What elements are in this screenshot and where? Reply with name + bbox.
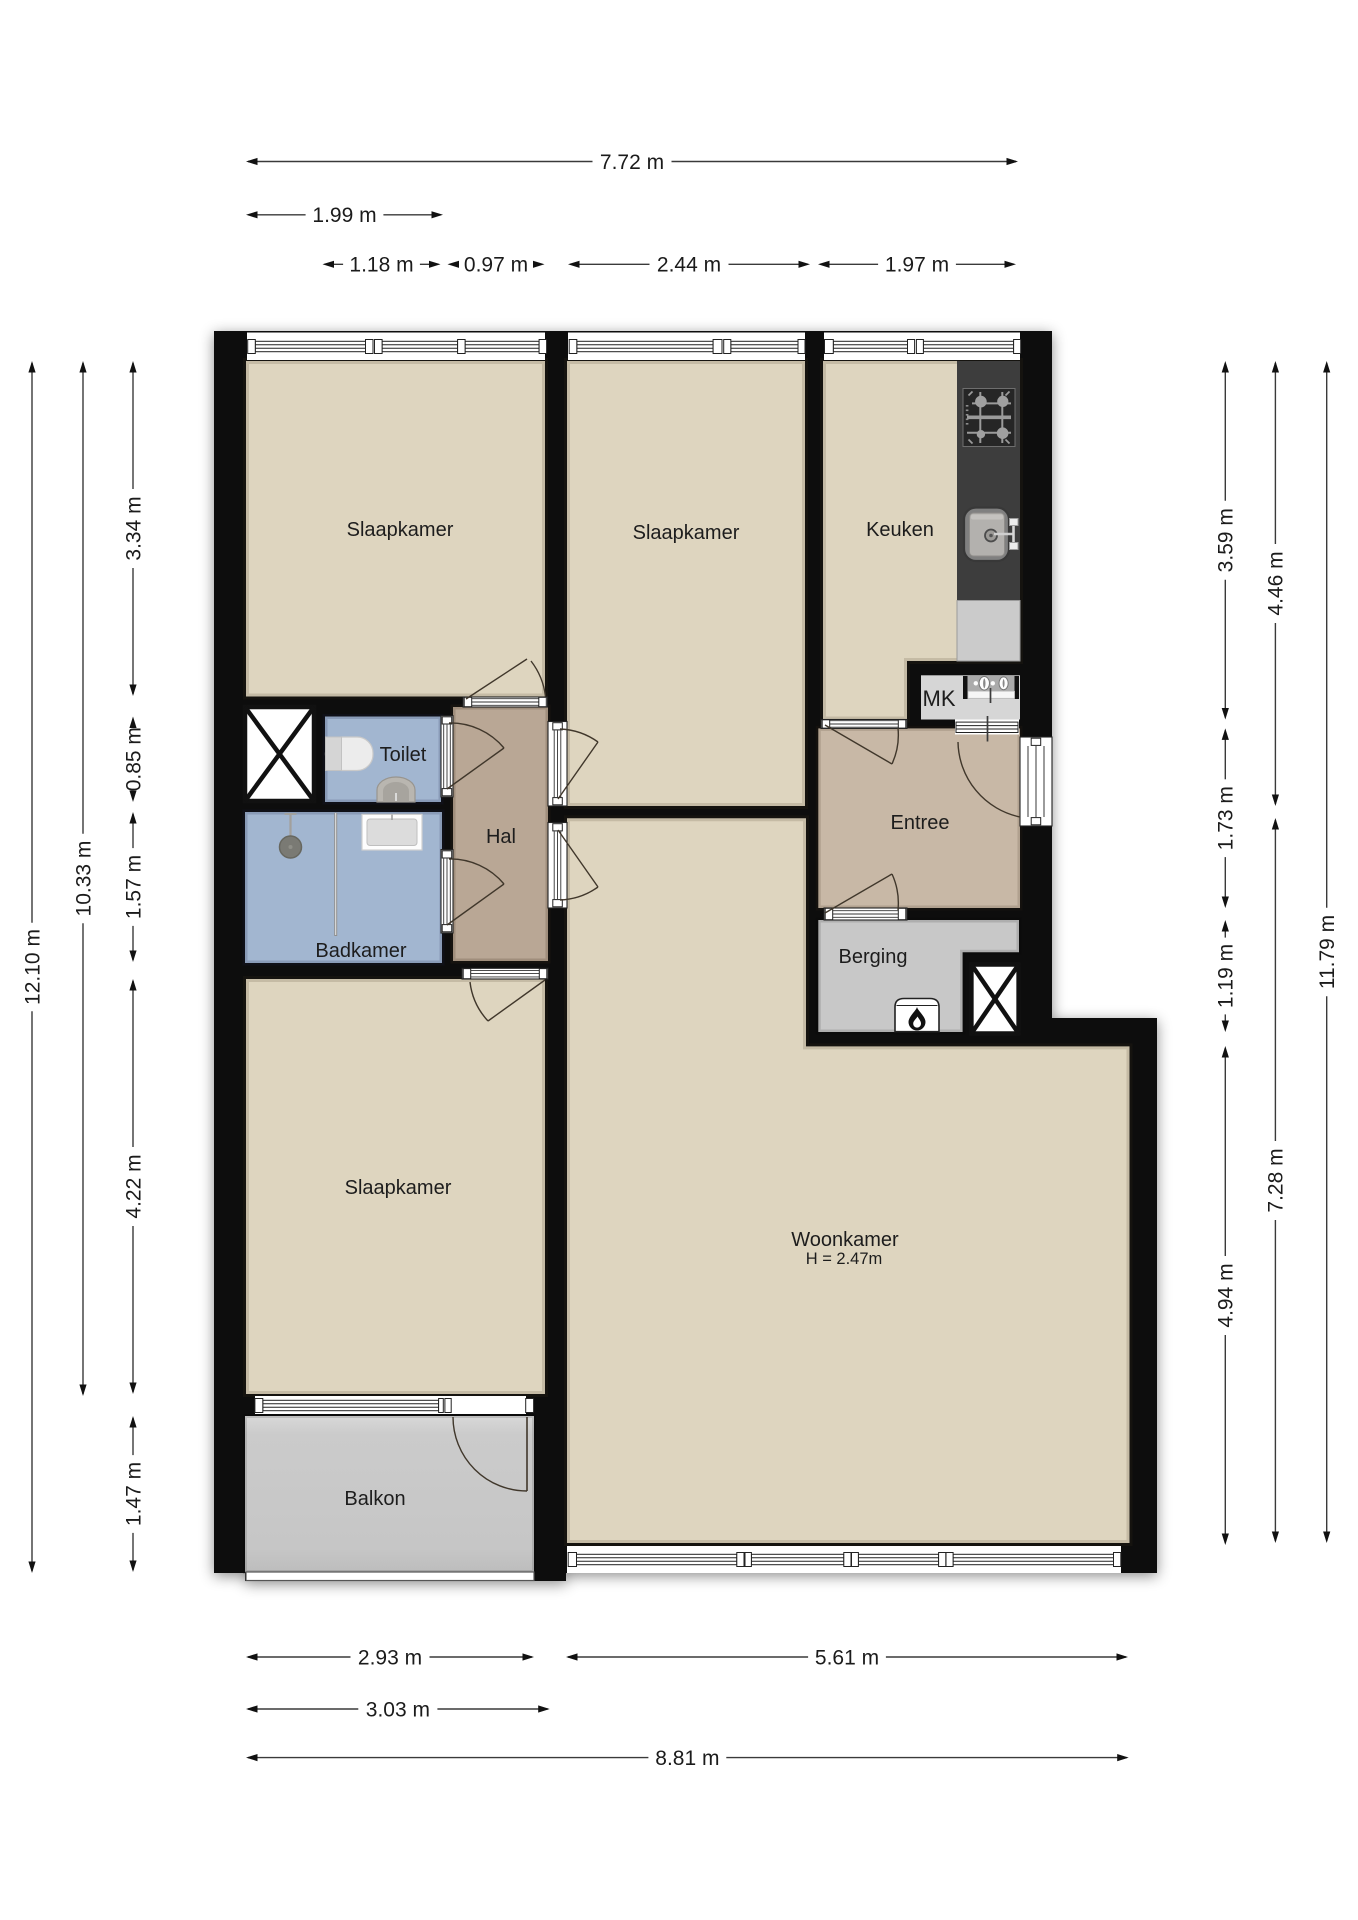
- svg-text:3.59 m: 3.59 m: [1215, 508, 1238, 572]
- svg-text:1.47 m: 1.47 m: [122, 1462, 145, 1526]
- svg-text:3.34 m: 3.34 m: [122, 496, 145, 560]
- svg-text:7.28 m: 7.28 m: [1265, 1148, 1288, 1212]
- svg-text:0.85 m: 0.85 m: [122, 727, 145, 791]
- svg-text:8.81 m: 8.81 m: [655, 1747, 719, 1770]
- svg-text:Keuken: Keuken: [866, 519, 934, 541]
- svg-text:4.22 m: 4.22 m: [122, 1154, 145, 1218]
- svg-text:Toilet: Toilet: [380, 744, 427, 766]
- svg-text:1.99 m: 1.99 m: [312, 204, 376, 227]
- svg-text:Entree: Entree: [891, 812, 950, 834]
- svg-text:0.97 m: 0.97 m: [464, 254, 528, 277]
- svg-text:1.73 m: 1.73 m: [1215, 786, 1238, 850]
- svg-text:10.33 m: 10.33 m: [72, 841, 95, 917]
- svg-text:Slaapkamer: Slaapkamer: [347, 519, 454, 541]
- svg-text:3.03 m: 3.03 m: [366, 1698, 430, 1721]
- svg-text:2.93 m: 2.93 m: [358, 1646, 422, 1669]
- svg-text:5.61 m: 5.61 m: [815, 1646, 879, 1669]
- svg-text:1.19 m: 1.19 m: [1215, 944, 1238, 1008]
- svg-text:Slaapkamer: Slaapkamer: [345, 1177, 452, 1199]
- svg-text:Hal: Hal: [486, 826, 516, 848]
- svg-text:1.57 m: 1.57 m: [122, 855, 145, 919]
- svg-text:Woonkamer: Woonkamer: [791, 1229, 899, 1251]
- svg-text:11.79 m: 11.79 m: [1316, 915, 1339, 989]
- svg-text:H = 2.47m: H = 2.47m: [806, 1250, 883, 1268]
- svg-text:12.10 m: 12.10 m: [21, 929, 44, 1005]
- svg-text:Berging: Berging: [839, 946, 908, 968]
- svg-text:7.72 m: 7.72 m: [600, 151, 664, 174]
- svg-text:1.18 m: 1.18 m: [349, 254, 413, 277]
- svg-text:4.46 m: 4.46 m: [1265, 551, 1288, 615]
- svg-text:Slaapkamer: Slaapkamer: [633, 522, 740, 544]
- svg-text:Balkon: Balkon: [344, 1488, 405, 1510]
- svg-text:Badkamer: Badkamer: [315, 940, 406, 962]
- svg-text:4.94 m: 4.94 m: [1215, 1263, 1238, 1327]
- svg-text:1.97 m: 1.97 m: [885, 254, 949, 277]
- svg-text:2.44 m: 2.44 m: [657, 254, 721, 277]
- svg-text:MK: MK: [923, 686, 956, 711]
